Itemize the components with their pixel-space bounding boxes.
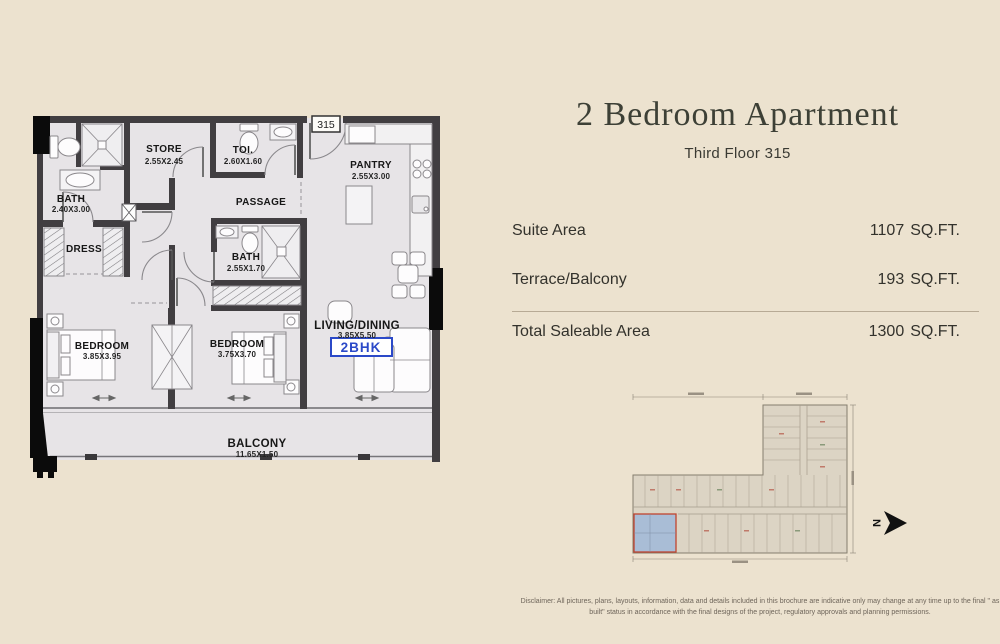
- room-label-bath2: BATH: [232, 252, 260, 263]
- room-dims-bath1: 2.40X3.00: [52, 205, 91, 214]
- room-label-balcony: BALCONY: [228, 438, 287, 450]
- room-dims-bedroom2: 3.75X3.70: [218, 350, 257, 359]
- room-dims-toi: 2.60X1.60: [224, 157, 263, 166]
- room-label-dress: DRESS: [66, 244, 102, 255]
- room-label-toi: TOI.: [233, 145, 253, 156]
- area-row-terrace: Terrace/Balcony 193SQ.FT.: [512, 271, 960, 289]
- area-label: Terrace/Balcony: [512, 271, 627, 289]
- area-row-total: Total Saleable Area 1300SQ.FT.: [512, 323, 960, 341]
- area-value: 1107: [870, 222, 904, 240]
- area-unit: SQ.FT.: [910, 271, 960, 289]
- key-plan: N: [626, 390, 920, 564]
- area-value: 193: [878, 271, 905, 289]
- room-dims-bath2: 2.55X1.70: [227, 264, 266, 273]
- area-unit: SQ.FT.: [910, 222, 960, 240]
- brochure-page: 315 2BHK BATH 2.40X3.00 STORE 2.55X2.45 …: [0, 0, 1000, 644]
- room-label-pantry: PANTRY: [350, 160, 392, 171]
- area-label: Suite Area: [512, 222, 586, 240]
- unit-type-label: 2BHK: [341, 340, 382, 355]
- north-label: N: [870, 519, 882, 527]
- room-dims-store: 2.55X2.45: [145, 157, 184, 166]
- area-label: Total Saleable Area: [512, 323, 650, 341]
- page-title: 2 Bedroom Apartment: [500, 96, 975, 134]
- unit-number-plate: 315: [312, 116, 340, 132]
- room-label-passage: PASSAGE: [236, 197, 286, 208]
- room-dims-living: 3.85X5.50: [338, 331, 377, 340]
- room-dims-pantry: 2.55X3.00: [352, 172, 391, 181]
- unit-type-badge: 2BHK: [331, 338, 392, 356]
- disclaimer-text: Disclaimer: All pictures, plans, layouts…: [515, 596, 1000, 618]
- room-dims-balcony: 11.65X1.50: [236, 450, 279, 459]
- room-label-bedroom1: BEDROOM: [75, 341, 129, 352]
- floor-plan: 315 2BHK BATH 2.40X3.00 STORE 2.55X2.45 …: [25, 103, 455, 488]
- area-row-suite: Suite Area 1107SQ.FT.: [512, 222, 960, 240]
- room-label-store: STORE: [146, 144, 182, 155]
- room-label-bath1: BATH: [57, 194, 85, 205]
- unit-number: 315: [317, 119, 335, 131]
- area-unit: SQ.FT.: [910, 323, 960, 341]
- room-label-bedroom2: BEDROOM: [210, 339, 264, 350]
- page-subtitle: Third Floor 315: [500, 145, 975, 162]
- area-divider: [512, 311, 979, 312]
- room-dims-bedroom1: 3.85X3.95: [83, 352, 122, 361]
- shaft: [122, 204, 136, 221]
- area-value: 1300: [869, 323, 905, 341]
- north-arrow-icon: N: [870, 511, 907, 535]
